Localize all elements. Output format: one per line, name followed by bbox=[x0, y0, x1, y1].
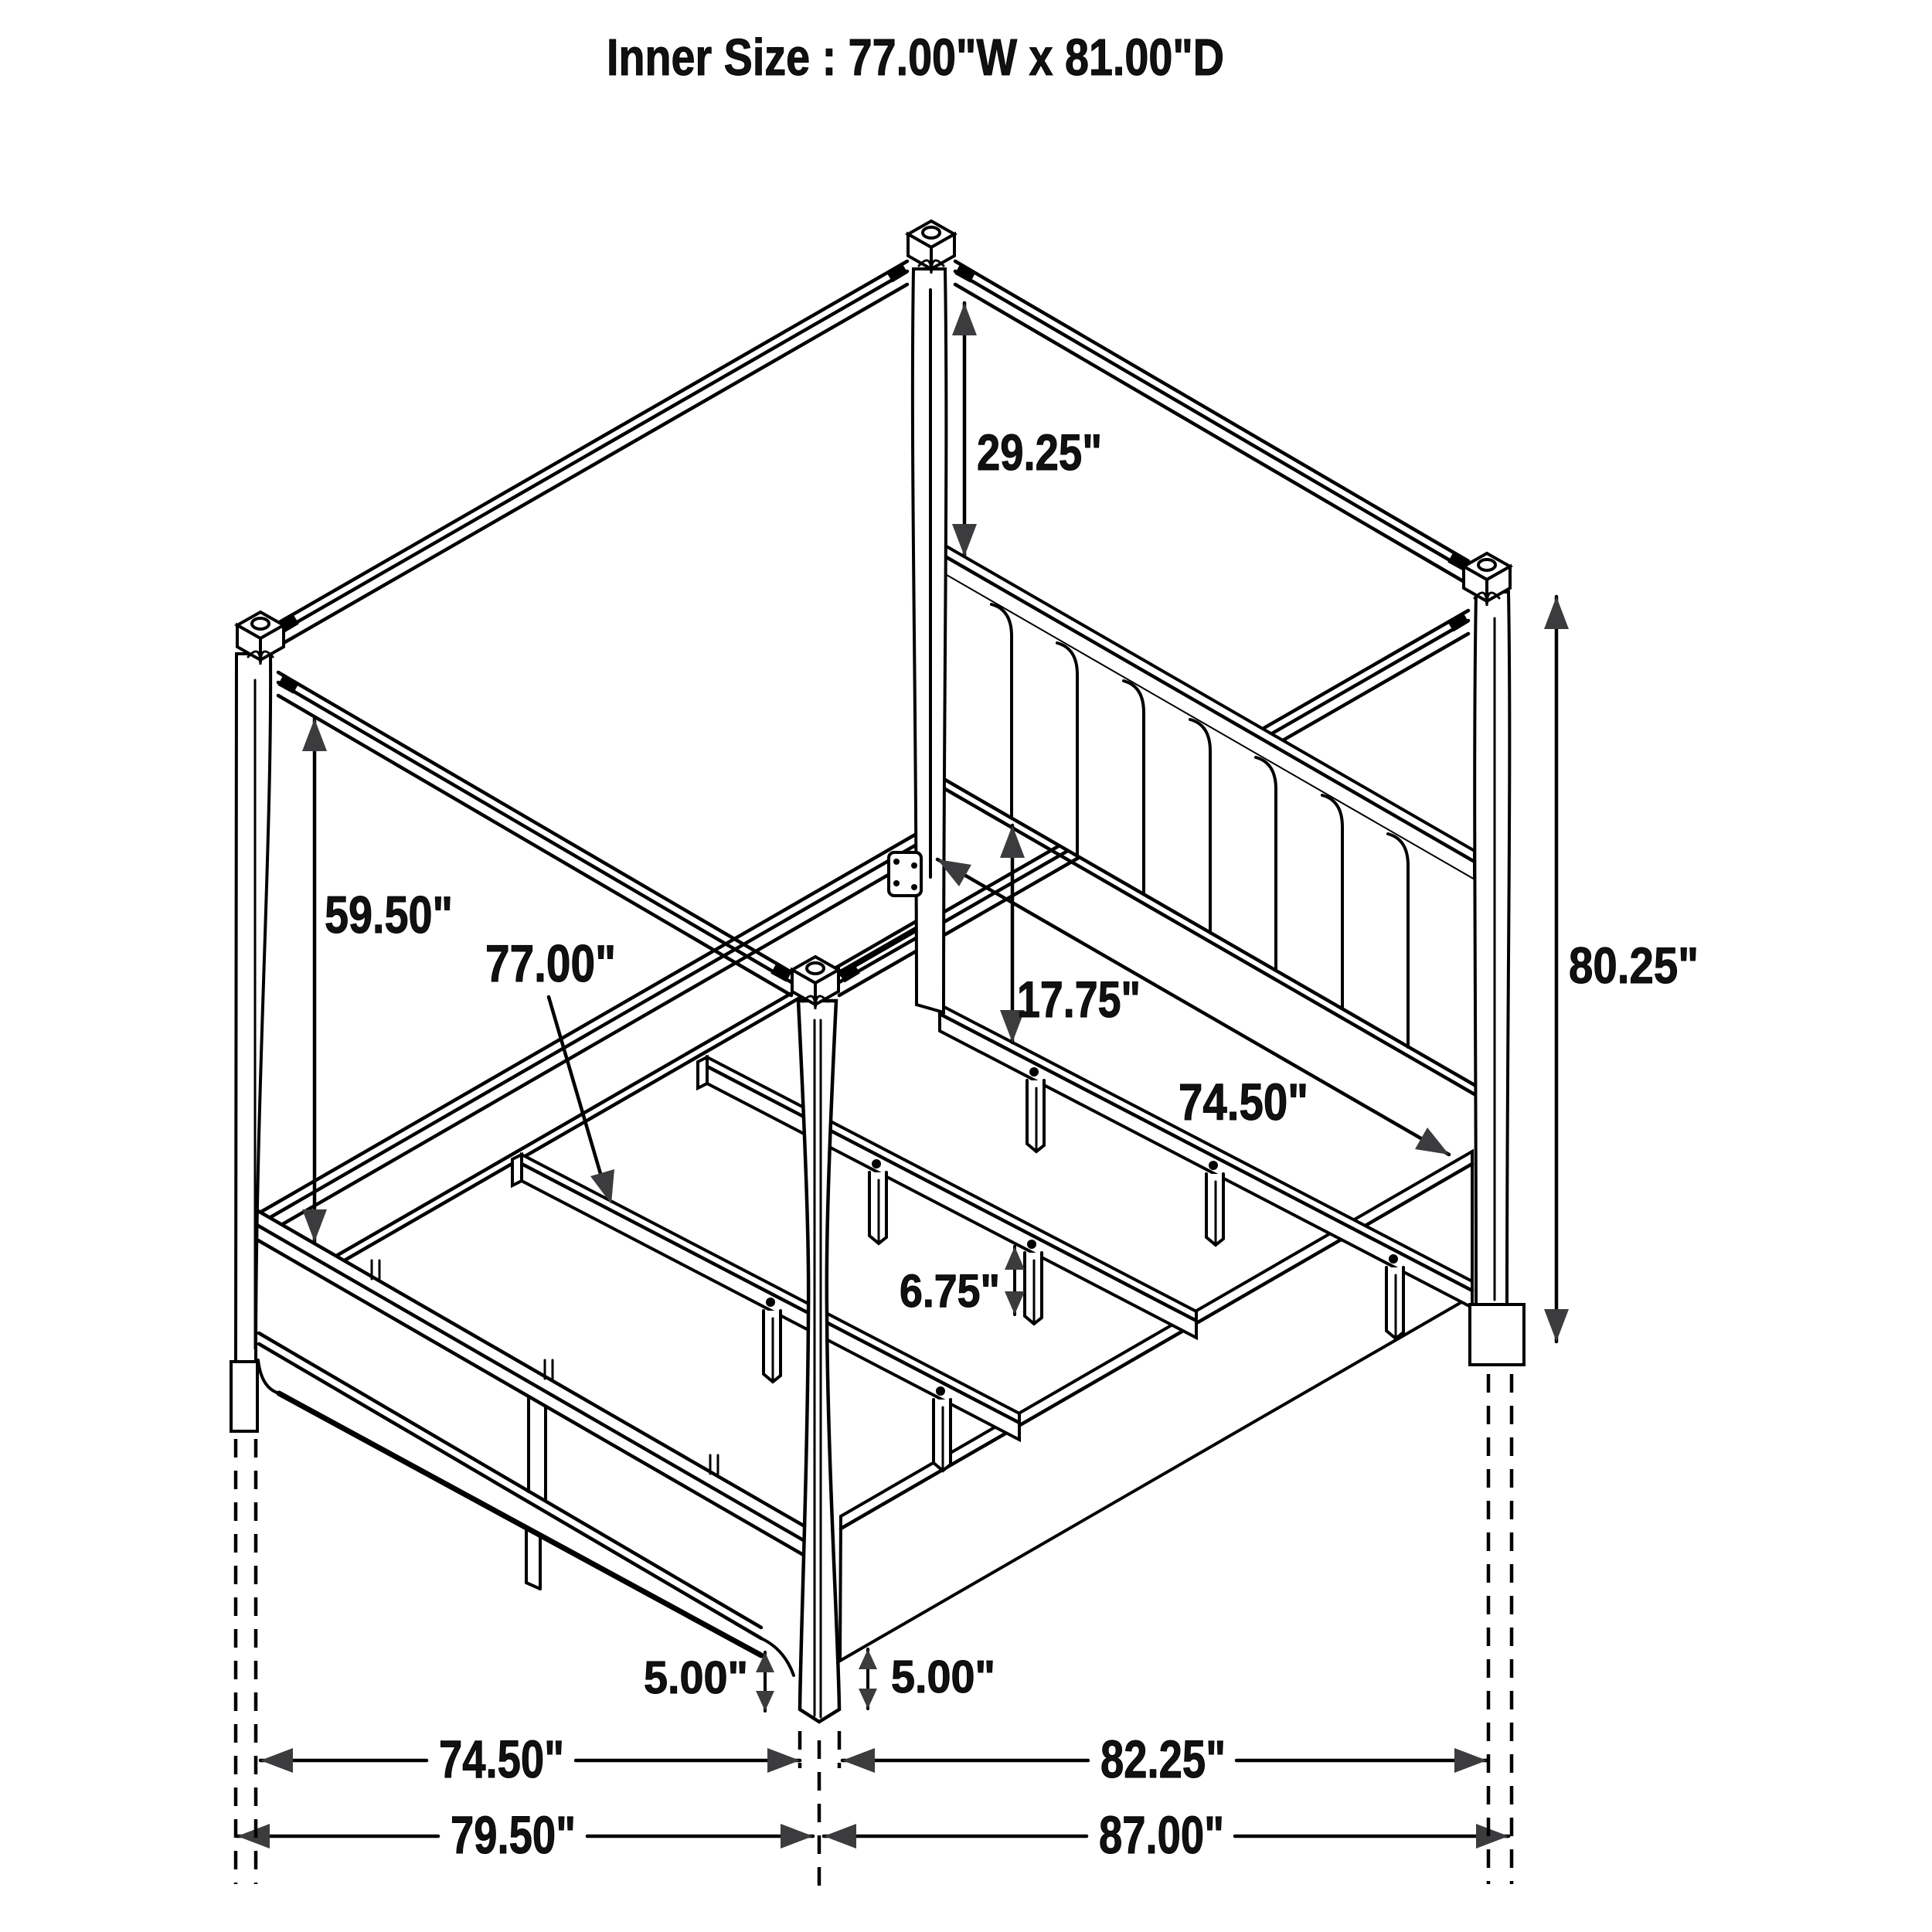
svg-text:87.00": 87.00" bbox=[1099, 1805, 1224, 1865]
svg-text:5.00": 5.00" bbox=[644, 1652, 748, 1703]
svg-text:74.50": 74.50" bbox=[439, 1730, 564, 1789]
svg-text:74.50": 74.50" bbox=[1179, 1073, 1308, 1131]
svg-text:Inner Size : 77.00"W x 81.00"D: Inner Size : 77.00"W x 81.00"D bbox=[607, 29, 1224, 87]
svg-text:59.50": 59.50" bbox=[325, 886, 453, 944]
svg-text:5.00": 5.00" bbox=[891, 1651, 995, 1702]
svg-text:29.25": 29.25" bbox=[977, 423, 1102, 481]
svg-text:80.25": 80.25" bbox=[1569, 937, 1699, 994]
svg-text:17.75": 17.75" bbox=[1017, 971, 1141, 1028]
svg-text:77.00": 77.00" bbox=[485, 934, 616, 993]
svg-text:6.75": 6.75" bbox=[900, 1265, 1000, 1317]
svg-text:82.25": 82.25" bbox=[1100, 1730, 1226, 1789]
svg-text:79.50": 79.50" bbox=[451, 1805, 576, 1865]
